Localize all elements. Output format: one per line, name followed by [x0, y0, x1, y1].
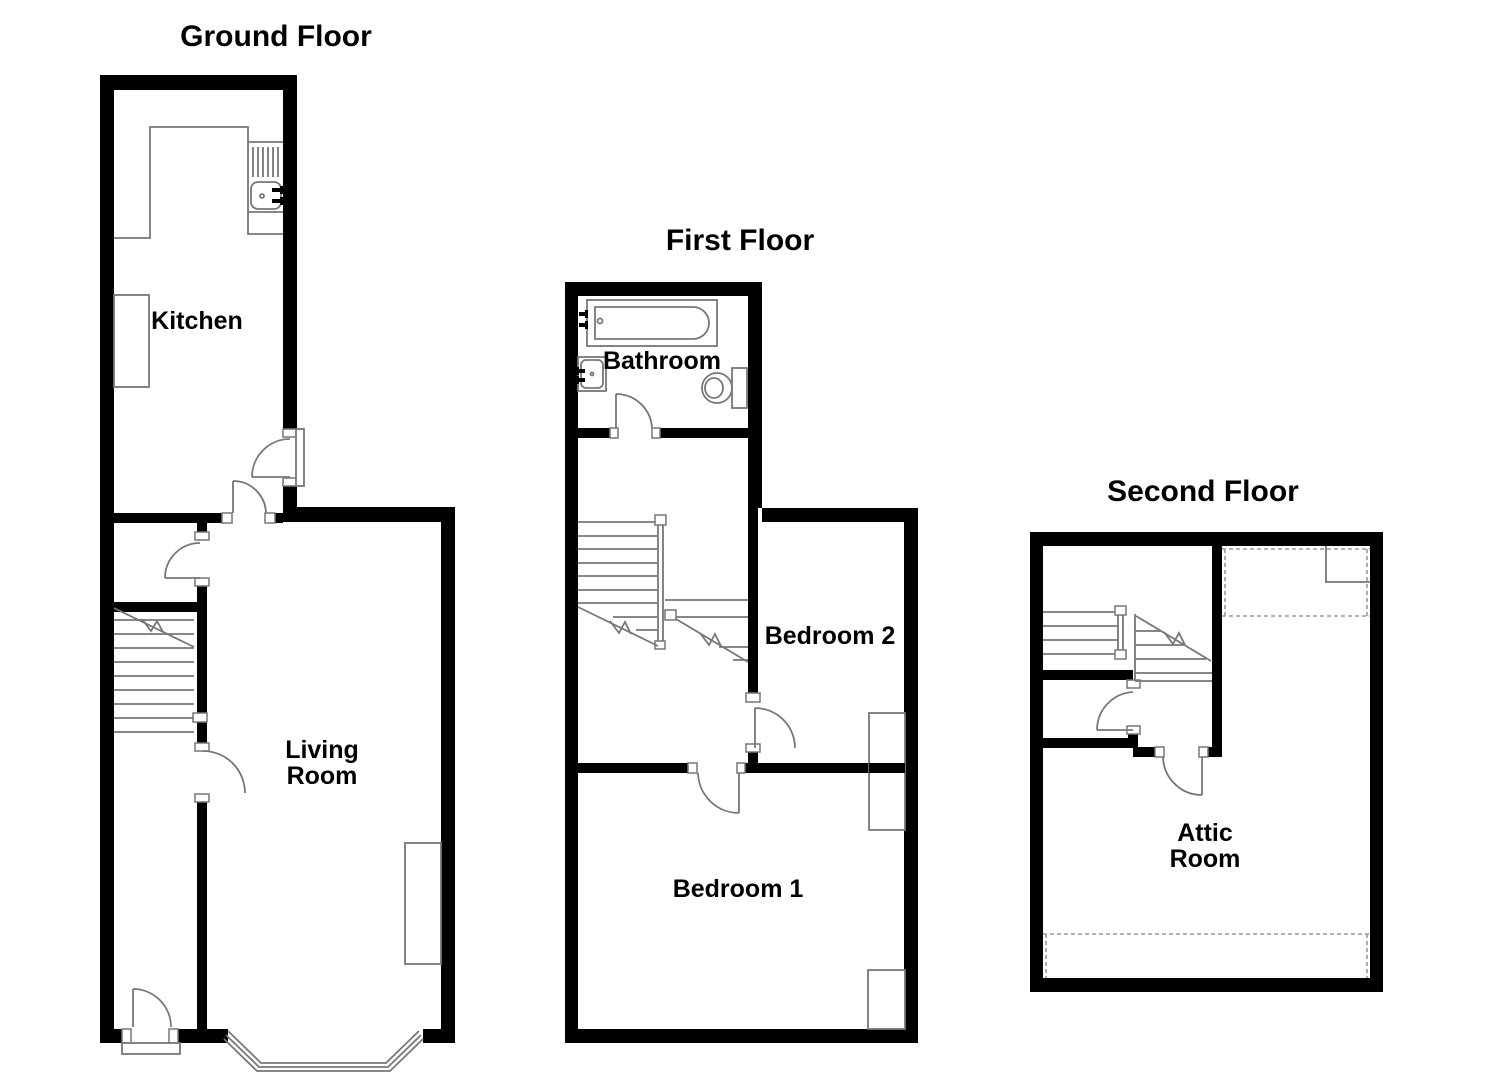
ground-floor-walls [100, 75, 455, 1043]
front-door [122, 989, 180, 1054]
first-floor-title: First Floor [666, 224, 815, 257]
floorplan-canvas: Ground Floor [0, 0, 1485, 1080]
bathroom-label: Bathroom [603, 347, 721, 375]
bedroom2-door [755, 708, 795, 748]
living-room-door [203, 751, 245, 793]
ground-floor-plan: Ground Floor [100, 20, 455, 1071]
kitchen-hall-door [233, 481, 266, 514]
attic-room-label-line1: Attic [1177, 819, 1233, 847]
floorplan-page: Ground Floor [0, 0, 1485, 1080]
bay-window [224, 1031, 423, 1071]
bedroom2-label: Bedroom 2 [765, 622, 896, 650]
restricted-height-dashed-lines [1043, 549, 1370, 978]
attic-room-label-line2: Room [1170, 845, 1241, 873]
kitchen-back-door [252, 429, 304, 486]
ground-floor-title: Ground Floor [180, 20, 372, 53]
second-floor-plan: Second Floor [1030, 475, 1383, 992]
basin-icon [576, 357, 606, 391]
second-floor-stairs [1043, 606, 1212, 681]
first-floor-plan: First Floor [565, 224, 918, 1043]
bedroom1-door [698, 773, 739, 813]
understairs-door [165, 543, 200, 578]
second-floor-door-jambs [1127, 680, 1208, 757]
kitchen-sink-icon [251, 147, 283, 209]
second-floor-title: Second Floor [1107, 475, 1299, 508]
living-room-label-line2: Room [287, 762, 358, 790]
bedroom1-label: Bedroom 1 [673, 875, 804, 903]
first-floor-stairs [578, 515, 748, 662]
eaves-storage-outline [1326, 546, 1370, 582]
bathtub-icon [579, 300, 717, 346]
living-room-label-line1: Living [285, 736, 359, 764]
first-floor-walls [565, 282, 918, 1043]
ground-floor-stairs [114, 608, 194, 732]
attic-door [1163, 757, 1202, 795]
second-floor-walls [1030, 532, 1383, 992]
landing-door [1097, 692, 1133, 730]
kitchen-worktop [114, 295, 149, 387]
bathroom-door [616, 394, 652, 428]
living-room-chimney-breast [405, 843, 441, 964]
kitchen-label: Kitchen [151, 307, 243, 335]
bedroom1-chimney-breast [868, 970, 905, 1029]
front-door-step [122, 1043, 180, 1054]
